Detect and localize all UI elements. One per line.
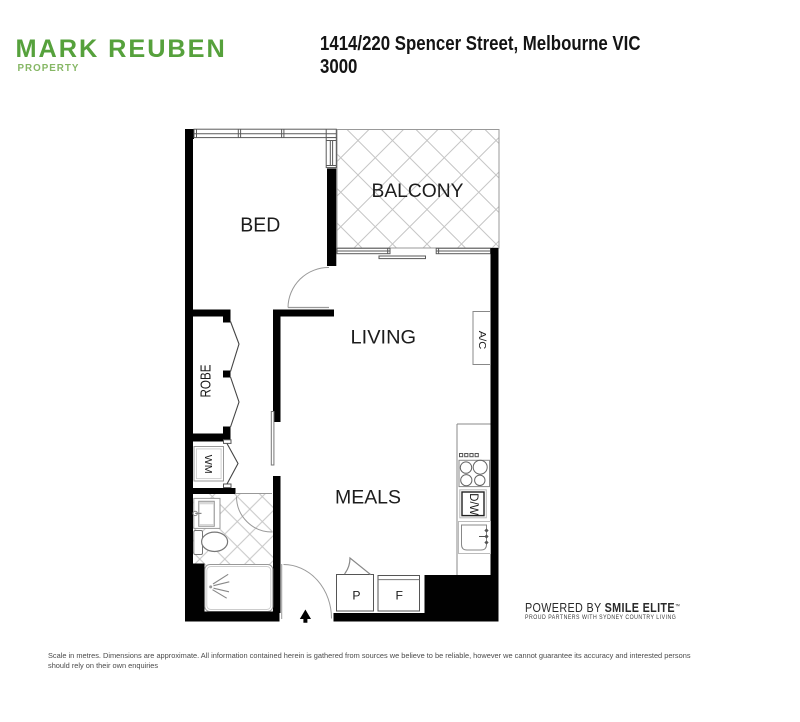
svg-text:LIVING: LIVING bbox=[351, 327, 417, 349]
svg-text:WM: WM bbox=[202, 455, 213, 474]
svg-text:BED: BED bbox=[240, 214, 280, 236]
svg-text:A/C: A/C bbox=[476, 331, 487, 350]
svg-text:BALCONY: BALCONY bbox=[372, 180, 464, 202]
svg-text:D/W: D/W bbox=[467, 493, 479, 515]
svg-text:ROBE: ROBE bbox=[198, 365, 214, 398]
svg-text:MEALS: MEALS bbox=[335, 487, 401, 509]
svg-text:P: P bbox=[352, 588, 360, 602]
svg-text:F: F bbox=[395, 588, 402, 602]
